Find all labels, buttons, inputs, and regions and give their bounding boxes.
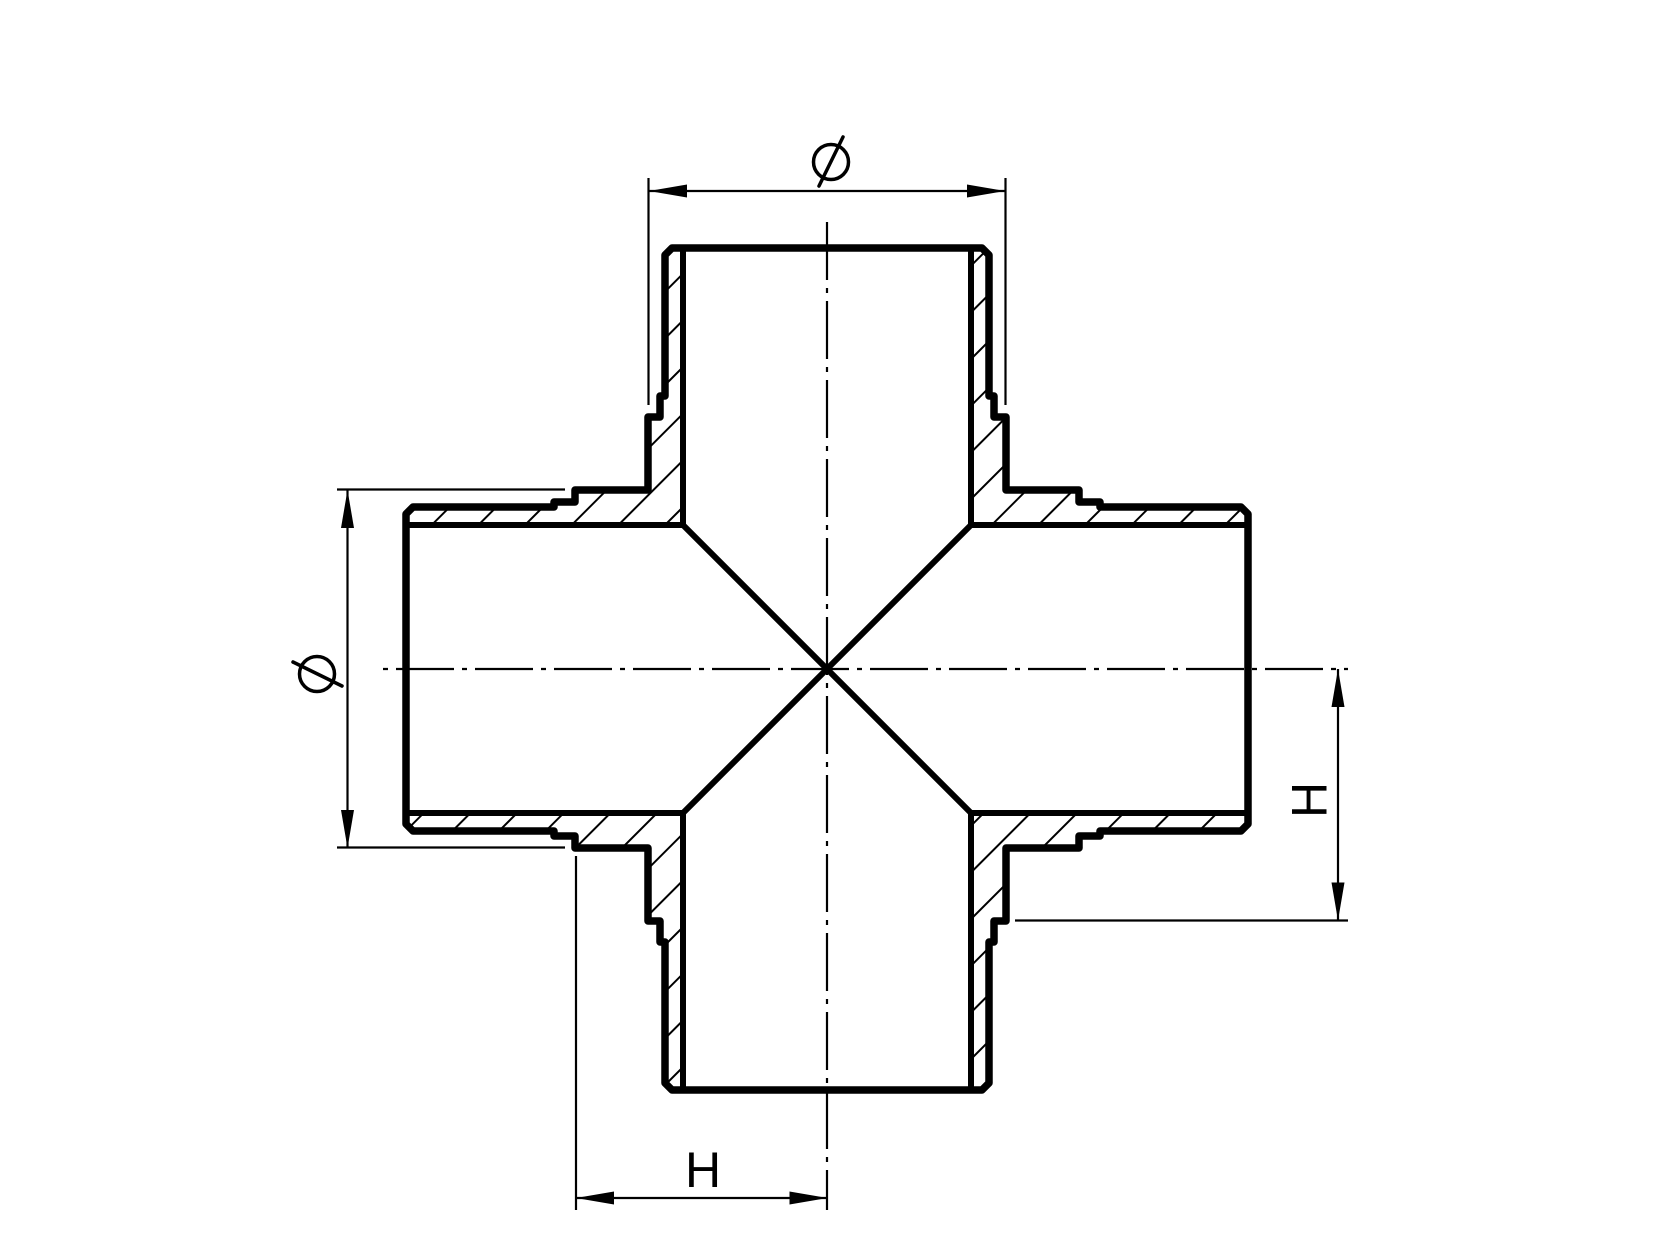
drawing-canvas: H H — [0, 0, 1680, 1260]
dimension-bottom-h: H — [576, 856, 828, 1210]
arrowhead-left — [649, 185, 687, 198]
h-label-bottom: H — [685, 1142, 721, 1198]
arrowhead-bottom — [1332, 883, 1345, 921]
center-lines — [383, 222, 1348, 1210]
h-label-right: H — [1282, 782, 1338, 818]
dimension-right-h: H — [1015, 669, 1348, 921]
diameter-symbol — [293, 657, 342, 692]
arrowhead-right — [790, 1192, 828, 1205]
diameter-symbol — [814, 137, 849, 186]
arrowhead-right — [967, 185, 1005, 198]
arrowhead-top — [1332, 669, 1345, 707]
arrowhead-left — [576, 1192, 614, 1205]
arrowhead-bottom — [341, 810, 354, 848]
cross-fitting-technical-drawing: H H — [0, 0, 1680, 1260]
arrowhead-top — [341, 490, 354, 528]
